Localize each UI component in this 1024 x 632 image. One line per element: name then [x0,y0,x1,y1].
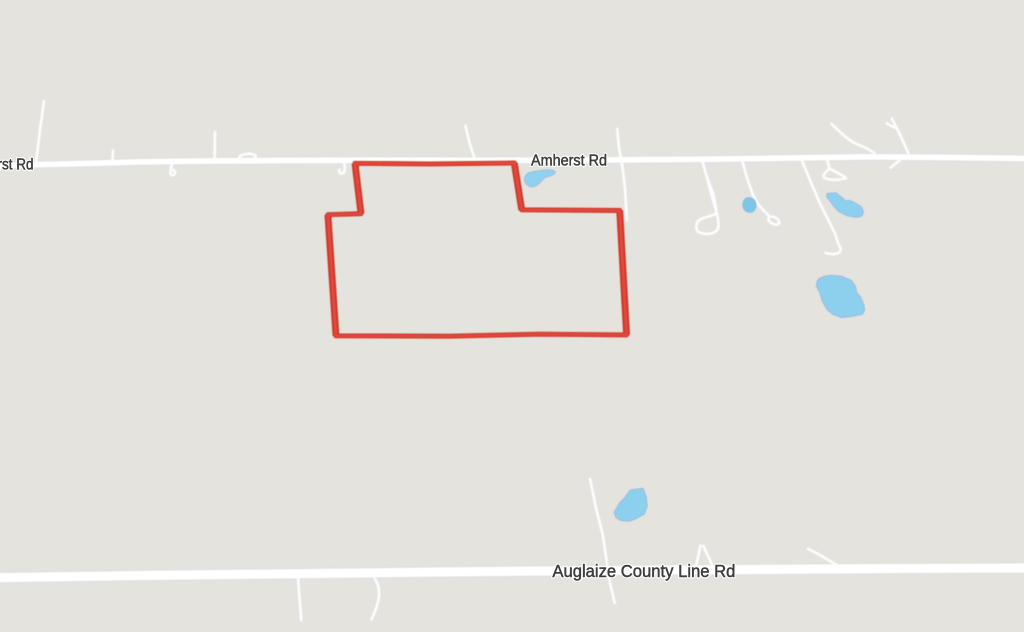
svg-text:Auglaize County Line Rd: Auglaize County Line Rd [552,561,735,581]
svg-text:rst Rd: rst Rd [0,157,34,174]
svg-text:Amherst Rd: Amherst Rd [531,153,607,170]
